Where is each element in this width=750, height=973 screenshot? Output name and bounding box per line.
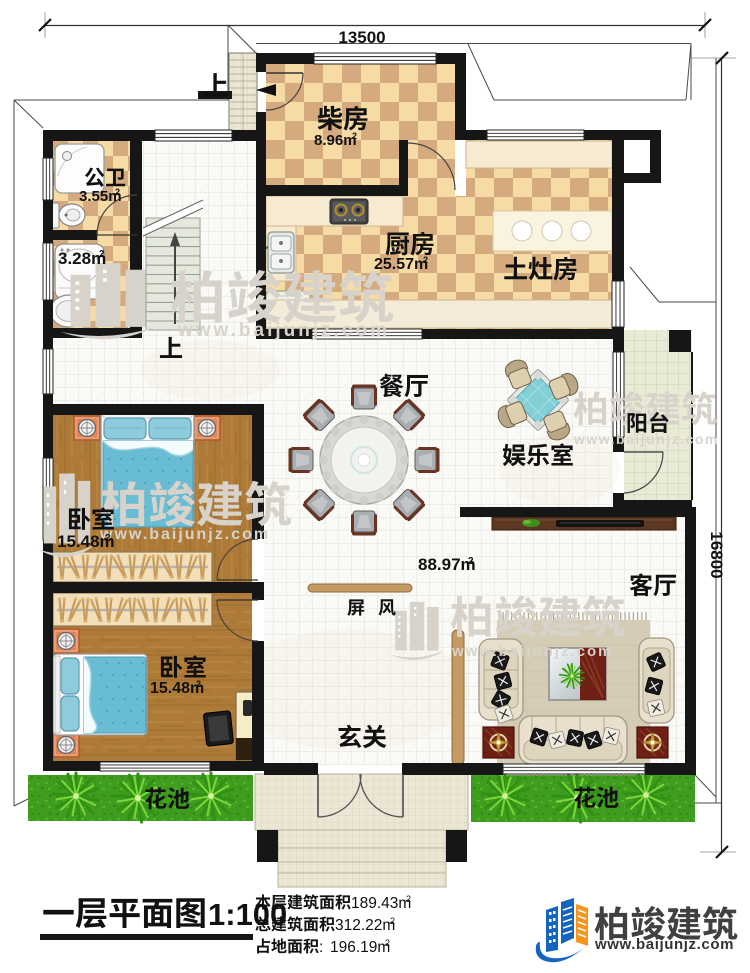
- svg-text:2: 2: [105, 533, 111, 544]
- svg-text::: :: [319, 939, 323, 956]
- svg-text:2: 2: [196, 679, 201, 689]
- svg-text:16800: 16800: [707, 531, 726, 578]
- svg-text:2: 2: [468, 556, 474, 567]
- svg-text:13500: 13500: [338, 28, 385, 47]
- svg-text:25.57m: 25.57m: [374, 256, 428, 273]
- svg-text:2: 2: [423, 255, 428, 265]
- svg-text:312.22m: 312.22m: [335, 917, 395, 934]
- svg-text:www.baijunjz.com: www.baijunjz.com: [573, 431, 719, 447]
- svg-text:2: 2: [385, 938, 390, 948]
- svg-text:www.baijunjz.com: www.baijunjz.com: [451, 643, 613, 660]
- svg-text:2: 2: [390, 916, 395, 926]
- svg-text:196.19m: 196.19m: [330, 939, 390, 956]
- svg-text:www.baijunjz.com: www.baijunjz.com: [177, 320, 390, 341]
- svg-text:2: 2: [115, 187, 120, 197]
- svg-text:2: 2: [99, 249, 105, 260]
- svg-text:www.baijunjz.com: www.baijunjz.com: [594, 936, 734, 953]
- svg-text:2: 2: [352, 131, 357, 141]
- svg-text:189.43m: 189.43m: [351, 895, 411, 912]
- svg-text:2: 2: [406, 894, 411, 904]
- svg-text:www.baijunjz.com: www.baijunjz.com: [99, 526, 270, 543]
- svg-text:8.96m: 8.96m: [314, 132, 357, 149]
